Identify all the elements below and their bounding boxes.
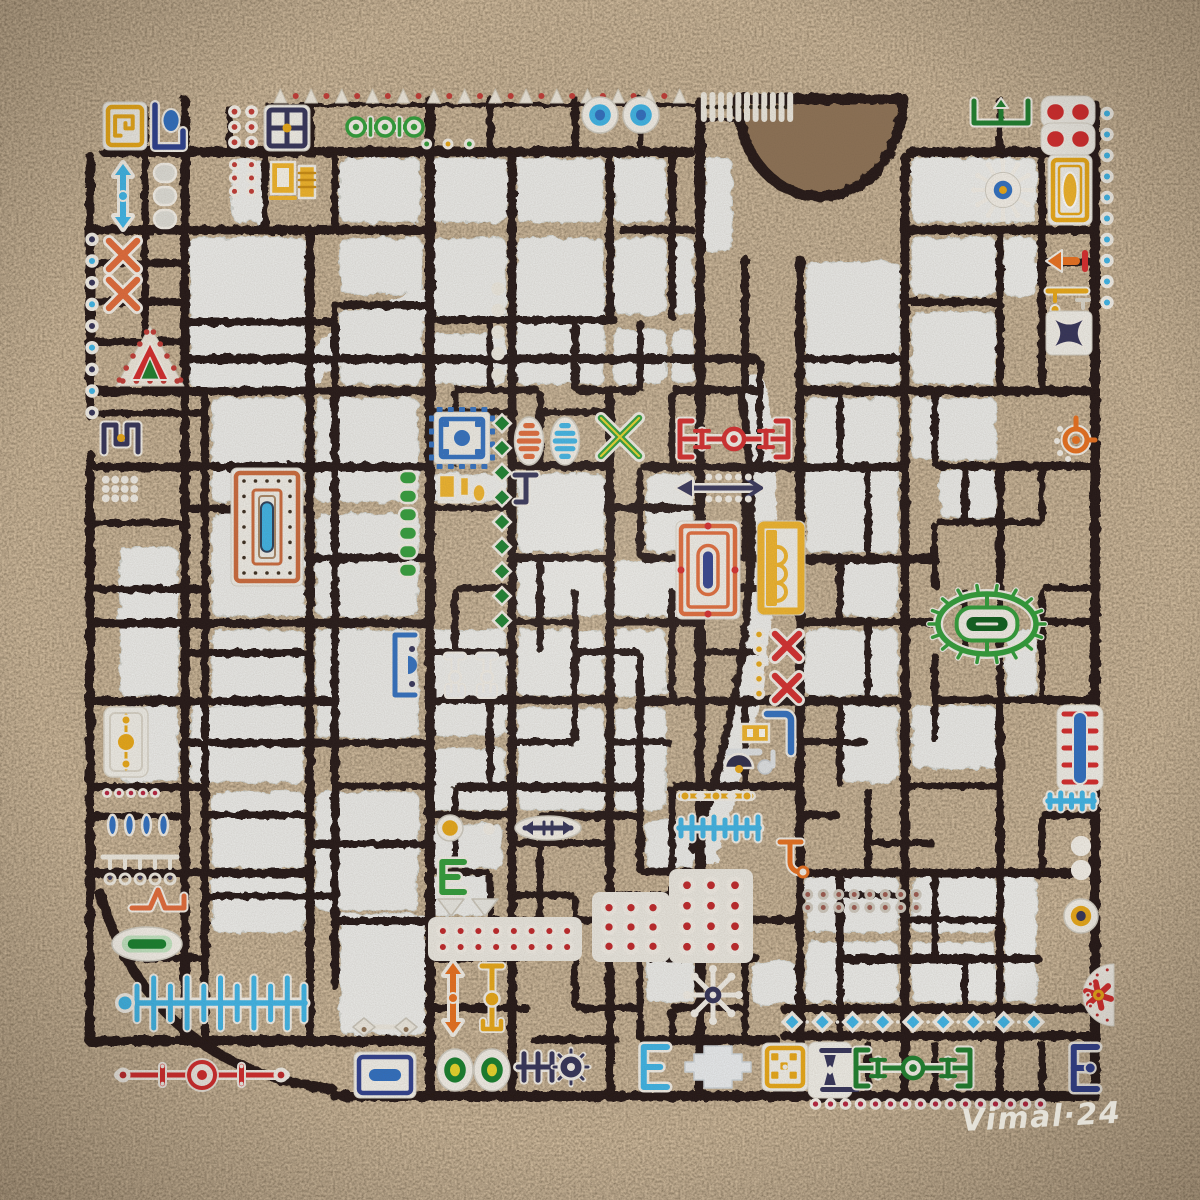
vignette-overlay [0,0,1200,1200]
artwork-canvas: Vimal·24 [0,0,1200,1200]
painting-photo: Vimal·24 [0,0,1200,1200]
